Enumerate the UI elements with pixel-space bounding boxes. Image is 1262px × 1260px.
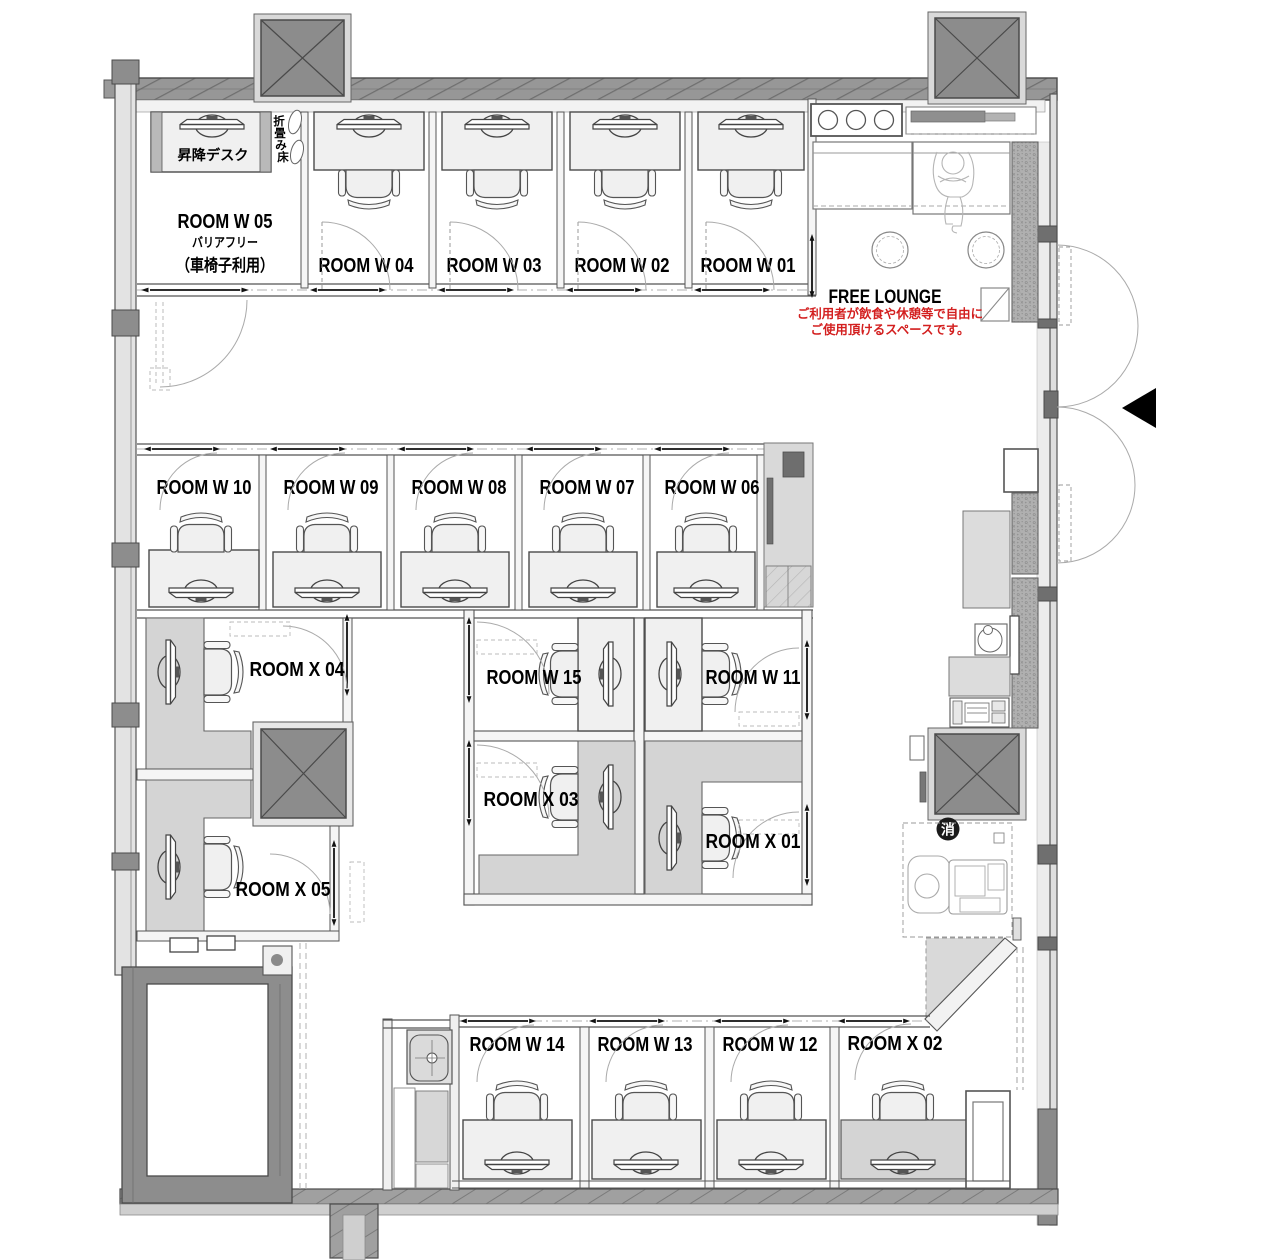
svg-text:ROOM X 05: ROOM X 05 [236, 879, 331, 901]
svg-text:み: み [275, 139, 287, 152]
svg-text:ご利用者が飲食や休憩等で自由に: ご利用者が飲食や休憩等で自由に [797, 306, 983, 321]
svg-text:折: 折 [273, 114, 285, 128]
svg-text:ROOM X 03: ROOM X 03 [484, 789, 579, 811]
svg-text:ROOM W 01: ROOM W 01 [701, 255, 796, 277]
svg-text:ROOM W 09: ROOM W 09 [284, 477, 379, 499]
svg-text:ROOM W 12: ROOM W 12 [723, 1034, 818, 1056]
svg-text:畳: 畳 [274, 127, 286, 140]
svg-text:ROOM W 06: ROOM W 06 [665, 477, 760, 499]
svg-text:ROOM X 04: ROOM X 04 [250, 659, 346, 681]
svg-text:昇降デスク: 昇降デスク [178, 147, 249, 163]
svg-text:ROOM W 14: ROOM W 14 [470, 1034, 566, 1056]
svg-text:ROOM W 02: ROOM W 02 [575, 255, 670, 277]
svg-text:ROOM W 07: ROOM W 07 [540, 477, 635, 499]
svg-text:（車椅子利用）: （車椅子利用） [176, 255, 274, 275]
svg-text:ROOM W 05: ROOM W 05 [178, 211, 273, 233]
svg-text:ROOM W 08: ROOM W 08 [412, 477, 507, 499]
svg-text:FREE LOUNGE: FREE LOUNGE [829, 286, 942, 308]
svg-text:ROOM W 13: ROOM W 13 [598, 1034, 693, 1056]
svg-text:ご使用頂けるスペースです。: ご使用頂けるスペースです。 [811, 322, 970, 337]
svg-text:ROOM W 10: ROOM W 10 [157, 477, 252, 499]
svg-text:床: 床 [277, 150, 289, 164]
svg-text:ROOM W 11: ROOM W 11 [706, 667, 801, 689]
svg-text:ROOM X 02: ROOM X 02 [848, 1033, 943, 1055]
svg-text:バリアフリー: バリアフリー [192, 235, 258, 250]
svg-text:ROOM W 15: ROOM W 15 [487, 667, 582, 689]
svg-text:消: 消 [941, 822, 955, 838]
svg-text:ROOM W 03: ROOM W 03 [447, 255, 542, 277]
svg-text:ROOM X 01: ROOM X 01 [706, 831, 801, 853]
svg-text:ROOM W 04: ROOM W 04 [319, 255, 415, 277]
